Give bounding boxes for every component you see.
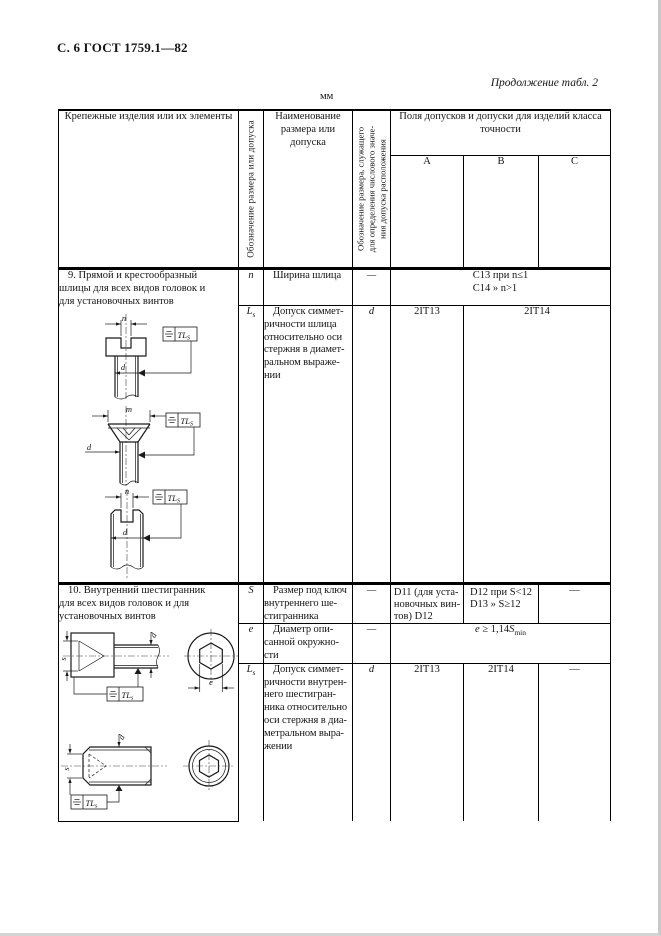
svg-text:TLS: TLS <box>168 493 180 505</box>
row9-n-symbol: n <box>239 269 264 306</box>
row9-ls-name: Допуск симмет- ричности шлица относитель… <box>264 306 353 584</box>
svg-text:s: s <box>61 767 71 771</box>
header-class-a: А <box>391 155 464 268</box>
row9-item-cell: 9. Прямой и крестообразный шлицы для все… <box>59 269 239 584</box>
row10-e-name: Диаметр опи- санной окружно- сти <box>264 624 353 663</box>
header-class-c: С <box>539 155 611 268</box>
symmetry-tolerance-frame: TLS <box>153 490 187 505</box>
row10-s-ref: — <box>353 584 391 624</box>
header-fasteners: Крепежные изделия или их элементы <box>59 110 239 269</box>
datum-triangle-icon <box>138 452 145 459</box>
datum-triangle-icon <box>135 668 142 674</box>
symmetry-tolerance-frame: TLs <box>107 687 143 702</box>
symmetry-icon <box>165 332 173 337</box>
row9-ls-value-bc: 2IT14 <box>464 306 611 584</box>
symmetry-icon <box>168 418 176 423</box>
svg-text:d: d <box>121 362 126 372</box>
row9-n-ref: — <box>353 269 391 306</box>
svg-text:TLS: TLS <box>181 416 193 428</box>
svg-text:d: d <box>87 442 92 452</box>
symmetry-tolerance-frame: TLS <box>163 327 197 342</box>
gost-document-page: { "page": { "header": "С. 6 ГОСТ 1759.1—… <box>0 0 661 936</box>
row10-ls-value-c: — <box>539 663 611 821</box>
row10-s-value-c: — <box>539 584 611 624</box>
drawing-countersunk-cross-recess-screw: m TLS d <box>61 402 239 488</box>
row9-n-name: Ширина шлица <box>264 269 353 306</box>
units-label: мм <box>320 91 333 102</box>
row10-ls-value-a: 2IT13 <box>391 663 464 821</box>
symmetry-icon <box>73 800 81 805</box>
symmetry-icon <box>109 692 117 697</box>
svg-text:d: d <box>148 630 159 639</box>
svg-text:s: s <box>59 657 68 661</box>
table-continuation-label: Продолжение табл. 2 <box>491 77 598 89</box>
row9-item-text: 9. Прямой и крестообразный шлицы для все… <box>59 270 238 308</box>
svg-text:TLs: TLs <box>86 798 98 810</box>
row10-e-value: e ≥ 1,14Smin <box>391 624 611 663</box>
row10-s-name: Размер под ключ внутреннего ше- стигранн… <box>264 584 353 624</box>
svg-text:n: n <box>125 487 129 496</box>
row9-n-value: C13 при n≤1 C14 » n>1 <box>391 269 611 306</box>
symmetry-tolerance-frame: TLS <box>166 413 200 428</box>
row10-ls-ref: d <box>353 663 391 821</box>
datum-triangle-icon <box>138 370 145 377</box>
svg-text:TLS: TLS <box>178 330 190 342</box>
page-header: С. 6 ГОСТ 1759.1—82 <box>57 40 188 56</box>
header-ref-designation: Обозначение размера, служащего для опред… <box>353 110 391 269</box>
row10-item-cell: 10. Внутренний шестигранник для всех вид… <box>59 584 239 822</box>
row10-item-text: 10. Внутренний шестигранник для всех вид… <box>59 585 238 623</box>
header-designation: Обозначение размера или допуска <box>239 110 264 269</box>
row10-s-value-a: D11 (для уста- новочных вин- тов) D12 <box>391 584 464 624</box>
drawing-slotted-cheese-head-screw: n TLS d <box>61 312 239 404</box>
row10-e-ref: — <box>353 624 391 663</box>
symmetry-tolerance-frame: TLs <box>71 795 107 810</box>
row10-ls-symbol: Ls <box>239 663 264 821</box>
header-tolerance-fields: Поля допусков и допуски для изделий клас… <box>391 110 611 155</box>
svg-text:TLs: TLs <box>122 690 134 702</box>
row9-ls-symbol: Ls <box>239 306 264 584</box>
drawing-hex-socket-cap-screw: s d TLs <box>59 628 239 714</box>
row10-e-symbol: e <box>239 624 264 663</box>
header-class-b: В <box>464 155 539 268</box>
row10-s-symbol: S <box>239 584 264 624</box>
svg-text:m: m <box>126 404 132 414</box>
datum-triangle-icon <box>116 785 123 791</box>
svg-text:n: n <box>122 313 126 323</box>
svg-text:e: e <box>209 677 213 687</box>
row10-ls-value-b: 2IT14 <box>464 663 539 821</box>
header-name: Наименование размера или допуска <box>264 110 353 269</box>
row9-ls-value-a: 2IT13 <box>391 306 464 584</box>
symmetry-icon <box>155 495 163 500</box>
drawing-hex-socket-set-screw: s d TLs <box>59 730 239 815</box>
row10-ls-name: Допуск симмет- ричности внутрен- него ше… <box>264 663 353 821</box>
drawing-slotted-set-screw: n TLS d <box>61 487 239 581</box>
row9-ls-ref: d <box>353 306 391 584</box>
tolerance-table: Крепежные изделия или их элементы Обозна… <box>58 109 611 822</box>
row10-s-value-b: D12 при S<12 D13 » S≥12 <box>464 584 539 624</box>
datum-triangle-icon <box>143 535 150 542</box>
svg-text:d: d <box>116 732 127 741</box>
